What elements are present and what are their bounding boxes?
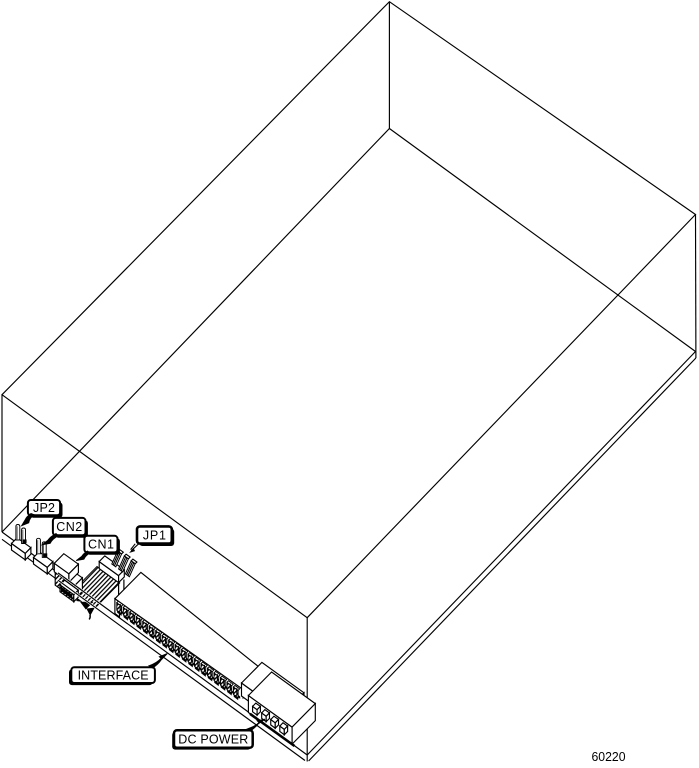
svg-text:DC POWER: DC POWER <box>178 733 248 747</box>
svg-text:60220: 60220 <box>592 750 626 764</box>
svg-text:INTERFACE: INTERFACE <box>78 669 149 683</box>
svg-text:JP2: JP2 <box>33 501 55 515</box>
svg-text:JP1: JP1 <box>143 529 166 543</box>
svg-text:CN1: CN1 <box>88 538 114 552</box>
svg-text:CN2: CN2 <box>56 520 82 534</box>
